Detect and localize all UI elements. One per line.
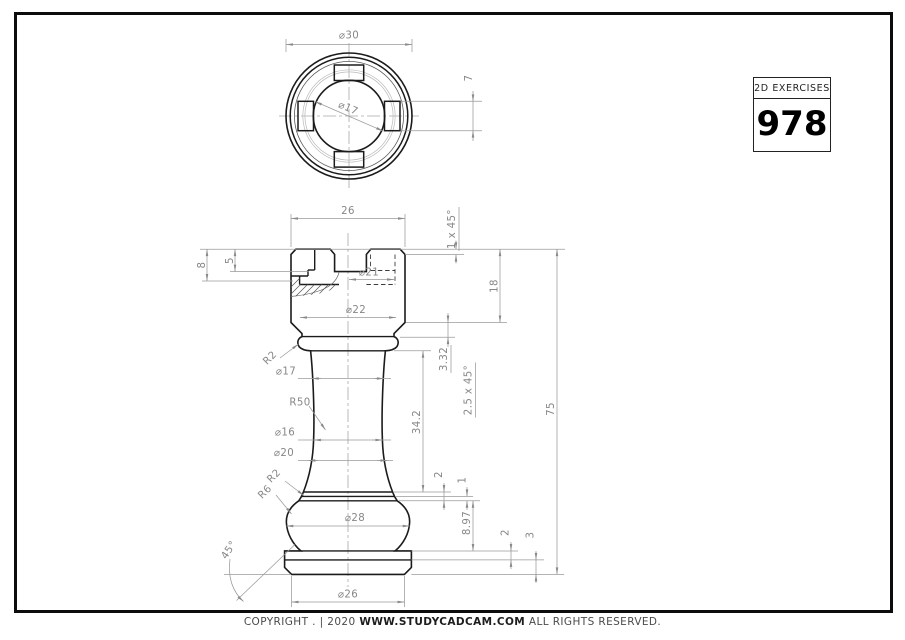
dim-label-3-32: 3.32 [439,347,450,371]
dim-label-d26: ⌀26 [338,590,358,601]
dim-label-18: 18 [490,279,501,293]
dim-label-slot7-group: 7 [464,75,475,82]
dim-label-1-neck: 1 [458,477,469,484]
dim-label-26: 26 [341,206,355,217]
dim-label-3b-group: 3 [526,532,537,539]
dim-label-2-base: 2 [501,529,512,536]
hatch-line [296,273,326,303]
dim-label-75: 75 [546,402,557,416]
dim-label-332-group: 3.32 [439,345,451,373]
dim-label-r2top-group: R2 [261,349,279,367]
dim-label-1x45: 1 x 45° [447,209,458,249]
hatch-line [317,273,347,303]
top-view: ⌀30 ⌀17 7 [279,31,482,190]
footer-copyright: COPYRIGHT . | 2020 WWW.STUDYCADCAM.COM A… [0,616,905,628]
dim-label-18-group: 18 [490,279,501,293]
dim-label-2-5x45: 2.5 x 45° [464,365,475,415]
dim-label-34-2: 34.2 [412,410,423,434]
section-hatching [275,273,354,303]
dim-label-d17: ⌀17 [276,367,296,378]
dim-label-2n-group: 2 [434,471,445,478]
dim-label-d20: ⌀20 [274,448,294,459]
dim-label-d28: ⌀28 [345,513,365,524]
title-block-number: 978 [754,99,830,150]
leader-r6 [276,495,292,514]
dim-label-d16: ⌀16 [275,428,295,439]
drawing-border: ⌀30 ⌀17 7 [14,12,893,613]
dim-label-r2bot-group: R2 [265,467,283,485]
title-block: 2D EXERCISES 978 [753,77,831,152]
angle-arc [229,559,243,602]
leader-r2-bottom [285,481,304,496]
dim-label-5: 5 [225,257,236,264]
dim-label-top-d17-group: ⌀17 [336,100,359,118]
copyright-prefix: COPYRIGHT . | 2020 [244,616,356,628]
dim-label-342-group: 34.2 [412,410,423,434]
dim-label-25x45-group: 2.5 x 45° [464,363,476,418]
dim-label-3-base: 3 [526,532,537,539]
dim-label-2b-group: 2 [501,529,512,536]
dim-label-8-97: 8.97 [462,511,473,535]
title-block-label: 2D EXERCISES [754,78,830,99]
hatch-line [310,273,340,303]
dim-label-r2-bottom: R2 [265,467,283,485]
page: ⌀30 ⌀17 7 [0,0,905,640]
hatch-line [289,273,319,303]
dim-label-45deg: 45° [220,539,240,561]
dim-label-top-d17: ⌀17 [336,100,359,118]
copyright-site: WWW.STUDYCADCAM.COM [359,616,525,628]
dim-label-r6-group: R6 [256,483,274,501]
dim-label-897-group: 8.97 [462,511,473,535]
hatch-line [324,273,354,303]
dim-label-r6: R6 [256,483,274,501]
hatch-line [303,273,333,303]
dim-label-r50: R50 [289,398,310,409]
hatch-line [275,273,305,303]
dim-label-8-group: 8 [197,262,208,269]
dim-label-slot-width: 7 [464,75,475,82]
dim-label-8: 8 [197,262,208,269]
copyright-suffix: ALL RIGHTS RESERVED. [529,616,661,628]
dim-label-5-group: 5 [225,257,236,264]
dim-label-75-group: 75 [546,402,557,416]
angle-ref-line [237,545,296,601]
leader-r50 [309,406,326,430]
front-view: 26 1 x 45° 8 5 ⌀21 ⌀22 18 R2 [197,206,565,607]
dim-label-2-neck: 2 [434,471,445,478]
leader-r2-top [280,344,299,358]
dim-label-d21: ⌀21 [359,268,379,279]
dim-label-1n-group: 1 [458,477,469,484]
dim-label-top-d30: ⌀30 [339,31,359,42]
dim-label-d22: ⌀22 [346,305,366,316]
hatch-line [282,273,312,303]
dim-label-45-group: 45° [220,539,240,561]
dim-label-1x45-group: 1 x 45° [447,207,459,251]
dim-label-r2-top: R2 [261,349,279,367]
